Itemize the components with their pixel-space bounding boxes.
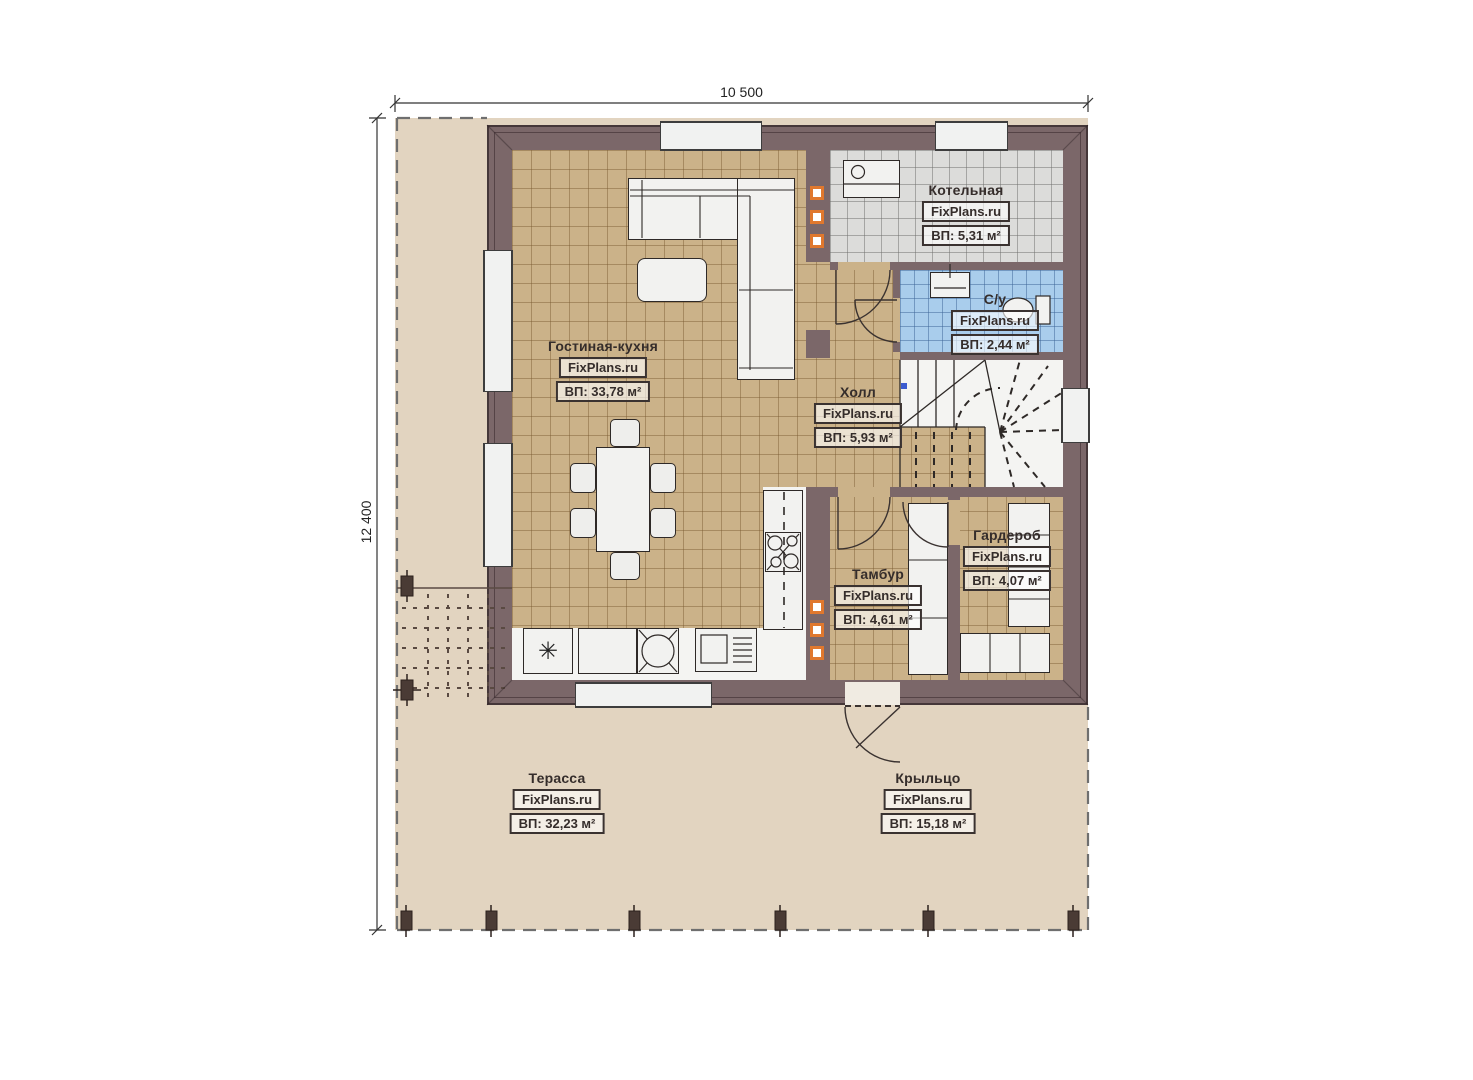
door-opening-entrance: [845, 682, 900, 705]
staircase-winder-area: [985, 360, 1063, 487]
room-label-porch: Крыльцо FixPlans.ru ВП: 15,18 м²: [881, 770, 976, 834]
floor-plan: ✳: [0, 0, 1473, 1080]
wall-vent-icon: [810, 210, 824, 224]
dimension-left-label: 12 400: [358, 487, 374, 557]
room-area: ВП: 15,18 м²: [881, 813, 976, 834]
window-left-upper: [483, 250, 513, 392]
wall-vent-icon: [810, 234, 824, 248]
window-top-right: [935, 121, 1008, 151]
dining-table: [596, 447, 650, 552]
room-area: ВП: 4,61 м²: [834, 609, 922, 630]
room-area: ВП: 4,07 м²: [963, 570, 1051, 591]
window-left-lower: [483, 443, 513, 567]
dining-chair: [610, 552, 640, 580]
room-name: Холл: [814, 384, 902, 400]
room-name: Гардероб: [963, 527, 1051, 543]
dining-chair: [610, 419, 640, 447]
fridge: ✳: [523, 628, 573, 674]
dimension-top-label: 10 500: [395, 84, 1088, 100]
dining-chair: [650, 463, 676, 493]
window-kitchen: [575, 682, 712, 708]
room-name: Крыльцо: [881, 770, 976, 786]
boiler-unit: [843, 160, 900, 198]
door-opening-vestibule: [838, 487, 890, 497]
wall-stub-hall: [806, 330, 830, 358]
room-label-wardrobe: Гардероб FixPlans.ru ВП: 4,07 м²: [963, 527, 1051, 591]
room-name: Терасса: [510, 770, 605, 786]
dining-chair: [570, 463, 596, 493]
coffee-table: [637, 258, 707, 302]
room-area: ВП: 5,31 м²: [922, 225, 1010, 246]
room-label-living: Гостиная-кухня FixPlans.ru ВП: 33,78 м²: [548, 338, 658, 402]
wardrobe-cabinet-bottom: [960, 633, 1050, 673]
room-label-bathroom: С/у FixPlans.ru ВП: 2,44 м²: [951, 291, 1039, 355]
sofa-chaise: [737, 178, 795, 380]
room-area: ВП: 2,44 м²: [951, 334, 1039, 355]
watermark: FixPlans.ru: [834, 585, 922, 606]
room-label-hall: Холл FixPlans.ru ВП: 5,93 м²: [814, 384, 902, 448]
oven-unit: [695, 628, 757, 672]
watermark: FixPlans.ru: [922, 201, 1010, 222]
wall-vent-icon: [810, 623, 824, 637]
door-opening-bathroom: [893, 298, 900, 342]
watermark: FixPlans.ru: [963, 546, 1051, 567]
room-area: ВП: 33,78 м²: [556, 381, 651, 402]
room-area: ВП: 5,93 м²: [814, 427, 902, 448]
room-label-vestibule: Тамбур FixPlans.ru ВП: 4,61 м²: [834, 566, 922, 630]
window-right-stairs: [1061, 388, 1090, 443]
watermark: FixPlans.ru: [559, 357, 647, 378]
fridge-icon: ✳: [524, 629, 572, 673]
room-area: ВП: 32,23 м²: [510, 813, 605, 834]
kitchen-sink-unit: [637, 628, 679, 674]
room-name: Гостиная-кухня: [548, 338, 658, 354]
dining-chair: [650, 508, 676, 538]
room-name: Котельная: [922, 182, 1010, 198]
window-top-left: [660, 121, 762, 151]
wall-vent-icon: [810, 186, 824, 200]
wall-vent-icon: [810, 600, 824, 614]
dining-chair: [570, 508, 596, 538]
room-name: Тамбур: [834, 566, 922, 582]
watermark: FixPlans.ru: [884, 789, 972, 810]
room-name: С/у: [951, 291, 1039, 307]
watermark: FixPlans.ru: [513, 789, 601, 810]
room-label-terrace: Терасса FixPlans.ru ВП: 32,23 м²: [510, 770, 605, 834]
door-opening-boiler: [838, 262, 890, 270]
kitchen-cabinet: [578, 628, 637, 674]
watermark: FixPlans.ru: [814, 403, 902, 424]
watermark: FixPlans.ru: [951, 310, 1039, 331]
room-label-boiler: Котельная FixPlans.ru ВП: 5,31 м²: [922, 182, 1010, 246]
wall-vent-icon: [810, 646, 824, 660]
cooktop: [765, 532, 801, 572]
door-opening-wardrobe: [948, 500, 960, 545]
